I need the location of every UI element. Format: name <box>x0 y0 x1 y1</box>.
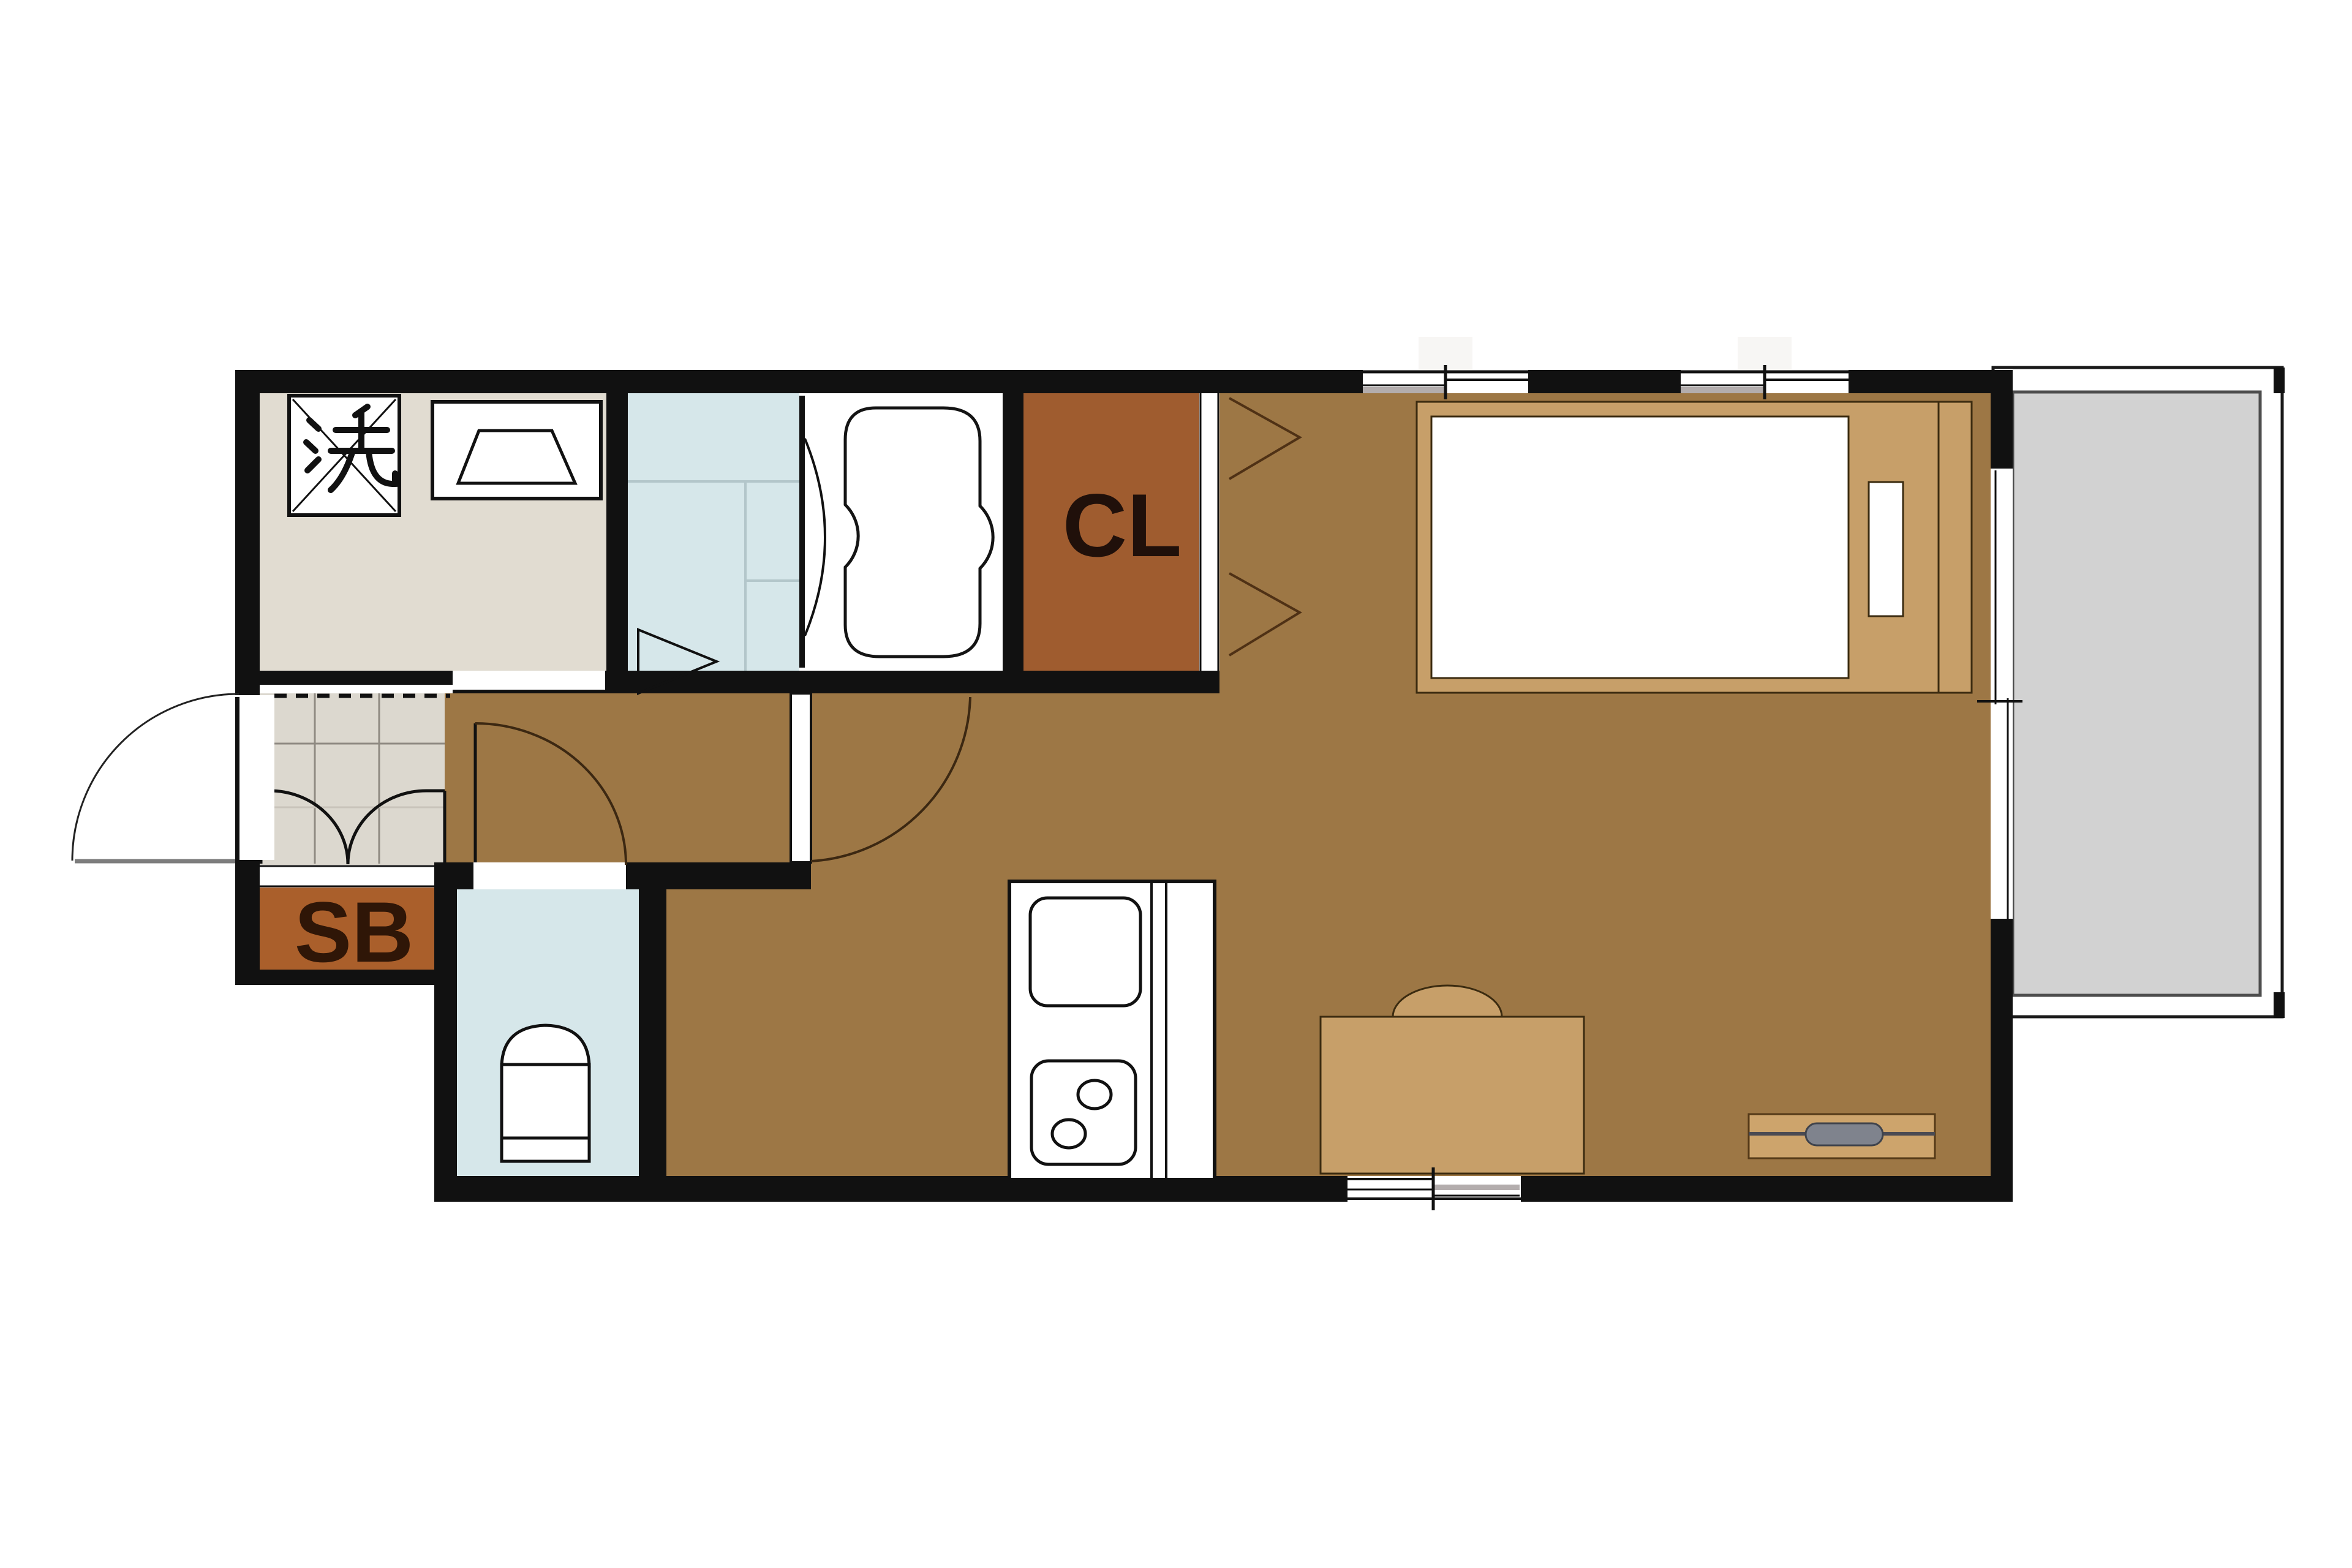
svg-text:CL: CL <box>1063 475 1182 575</box>
svg-text:SB: SB <box>295 884 413 980</box>
